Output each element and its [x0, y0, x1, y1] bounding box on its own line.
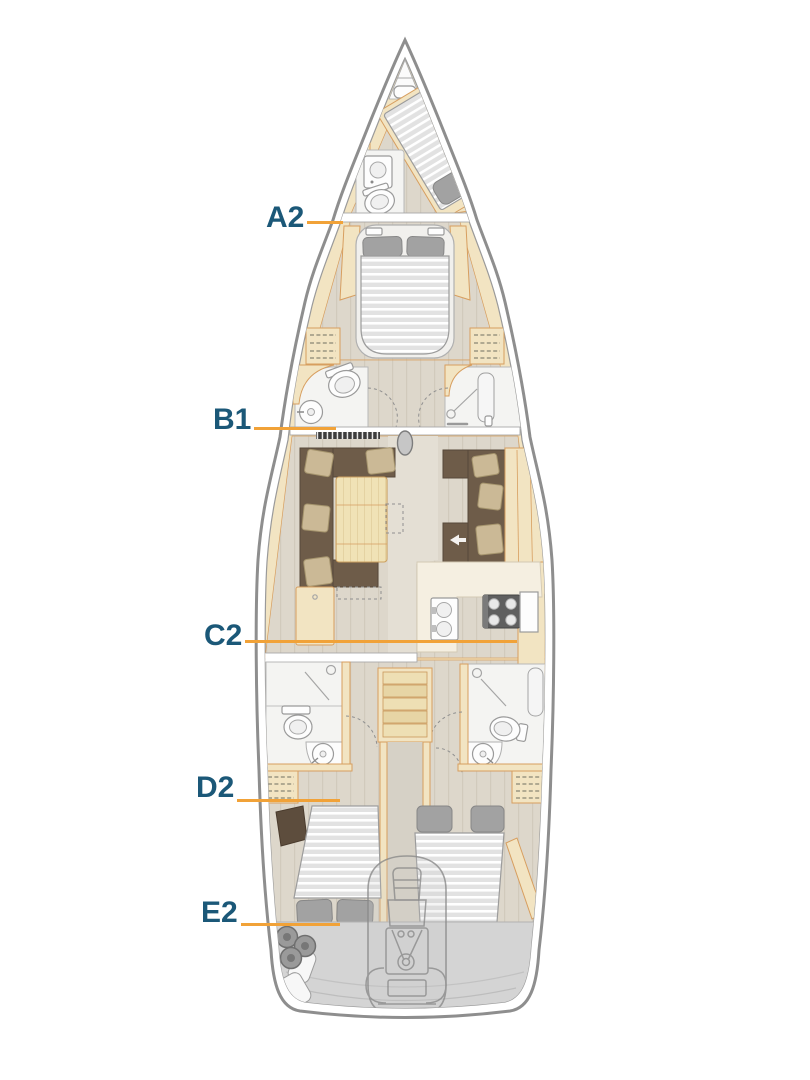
callout-a2: A2 — [266, 201, 343, 235]
side-bench-starboard — [470, 328, 504, 364]
side-bench-port — [306, 328, 340, 364]
leader-line-a2 — [307, 221, 343, 224]
callout-e2-label: E2 — [201, 896, 238, 930]
callout-a2-label: A2 — [266, 201, 304, 235]
bed-pillow — [363, 236, 403, 257]
bed-pillow — [417, 806, 452, 832]
leader-line-d2 — [237, 799, 340, 802]
bulkhead-a2 — [334, 213, 476, 222]
locker-starboard — [512, 771, 546, 803]
door-handle — [485, 416, 492, 426]
leader-line-e2 — [241, 923, 340, 926]
bed-pillow — [471, 806, 504, 832]
deck-plan-svg — [0, 0, 810, 1080]
callout-c2-label: C2 — [204, 619, 242, 653]
bulkhead-saloon-aft — [264, 653, 417, 662]
engine — [366, 856, 446, 1012]
saloon-table — [336, 477, 387, 562]
aft-head-port — [266, 662, 350, 770]
callout-d2: D2 — [196, 771, 340, 805]
wardrobe — [276, 806, 307, 846]
yacht-deck-plan: A2 B1 C2 D2 E2 — [0, 0, 810, 1080]
owner-bed — [356, 225, 454, 358]
leader-line-c2 — [245, 640, 517, 643]
callout-c2: C2 — [204, 619, 517, 653]
mast — [398, 431, 413, 455]
galley-fridge — [520, 592, 538, 632]
shower-seat — [528, 668, 543, 716]
wall — [262, 764, 352, 771]
shower-seat — [478, 373, 494, 422]
callout-d2-label: D2 — [196, 771, 234, 805]
bed-pillow — [407, 236, 445, 257]
callout-e2: E2 — [201, 896, 340, 930]
wall — [458, 764, 546, 771]
aft-head-starboard — [460, 664, 546, 770]
callout-b1: B1 — [213, 403, 336, 437]
leader-line-b1 — [254, 427, 336, 430]
callout-b1-label: B1 — [213, 403, 251, 437]
